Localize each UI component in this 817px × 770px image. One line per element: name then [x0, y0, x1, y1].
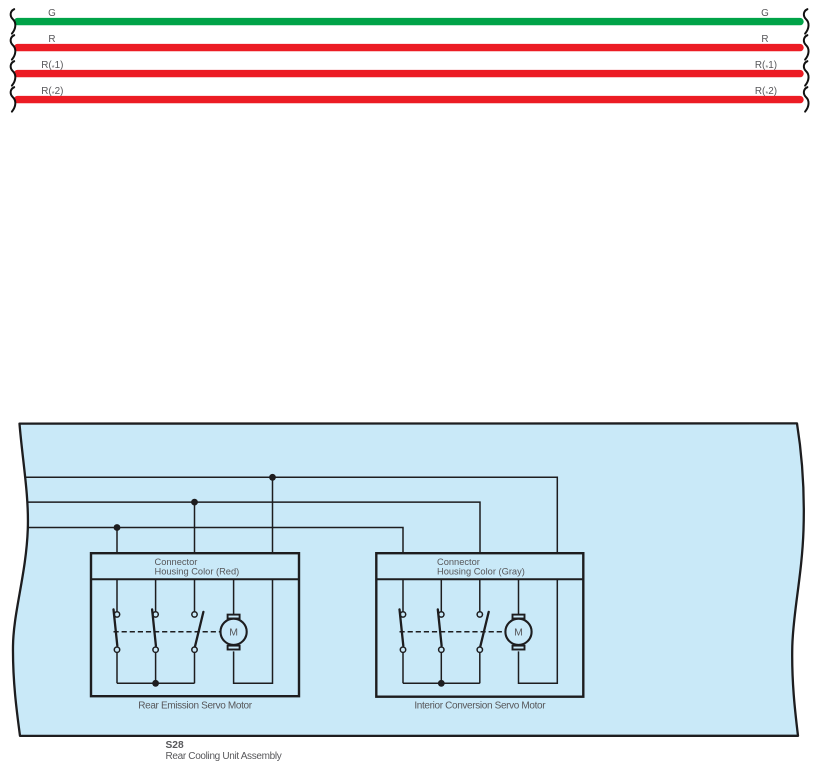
svg-text:Housing Color (Red): Housing Color (Red) — [155, 567, 240, 577]
svg-text:G: G — [761, 8, 769, 19]
svg-text:Housing Color (Gray): Housing Color (Gray) — [437, 567, 525, 577]
svg-text:R(*2): R(*2) — [755, 86, 777, 98]
svg-text:Connector: Connector — [155, 557, 198, 567]
svg-text:R: R — [761, 34, 768, 45]
svg-text:S28: S28 — [166, 740, 184, 751]
svg-text:M: M — [514, 627, 523, 639]
svg-text:R(*2): R(*2) — [41, 86, 63, 98]
svg-text:Rear Emission Servo Motor: Rear Emission Servo Motor — [138, 700, 253, 711]
svg-text:M: M — [229, 627, 238, 639]
svg-text:Interior Conversion Servo Moto: Interior Conversion Servo Motor — [414, 700, 546, 711]
svg-text:Connector: Connector — [437, 557, 480, 567]
svg-text:G: G — [48, 8, 56, 19]
svg-text:R(*1): R(*1) — [755, 60, 777, 72]
svg-text:R: R — [48, 34, 55, 45]
svg-text:Rear Cooling Unit Assembly: Rear Cooling Unit Assembly — [166, 751, 282, 762]
svg-text:R(*1): R(*1) — [41, 60, 63, 72]
